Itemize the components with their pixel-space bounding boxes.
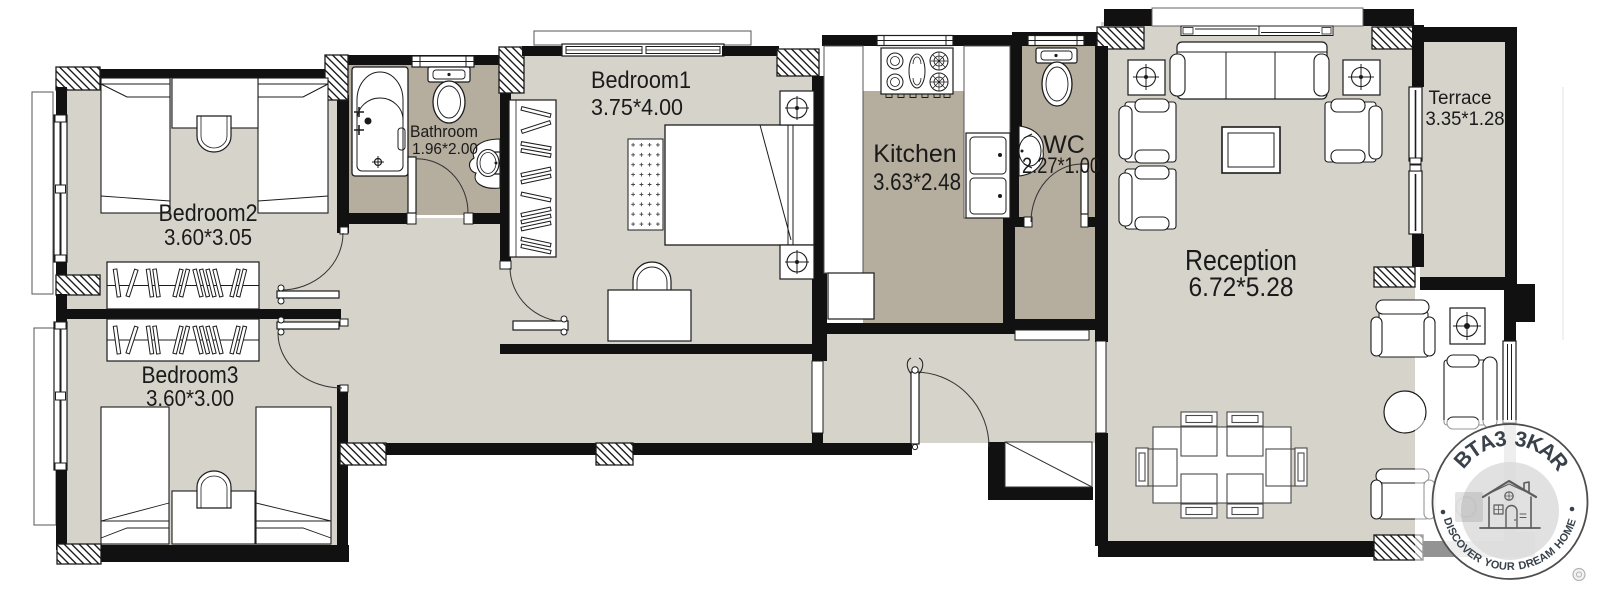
svg-text:6.72*5.28: 6.72*5.28 — [1189, 272, 1294, 302]
svg-text:1.96*2.00: 1.96*2.00 — [412, 141, 478, 158]
svg-text:3.60*3.05: 3.60*3.05 — [164, 224, 252, 250]
svg-text:Kitchen: Kitchen — [873, 140, 956, 168]
svg-text:Bathroom: Bathroom — [410, 123, 478, 141]
svg-text:3.35*1.28: 3.35*1.28 — [1426, 108, 1505, 130]
svg-text:3.60*3.00: 3.60*3.00 — [146, 385, 234, 411]
svg-text:3.63*2.48: 3.63*2.48 — [873, 169, 961, 196]
svg-text:Bedroom1: Bedroom1 — [591, 67, 691, 94]
svg-text:3.75*4.00: 3.75*4.00 — [591, 94, 683, 120]
svg-text:R: R — [1507, 561, 1515, 573]
svg-text:Bedroom2: Bedroom2 — [159, 200, 258, 227]
svg-text:Terrace: Terrace — [1429, 88, 1492, 109]
svg-text:2.27*1.00: 2.27*1.00 — [1022, 153, 1100, 178]
